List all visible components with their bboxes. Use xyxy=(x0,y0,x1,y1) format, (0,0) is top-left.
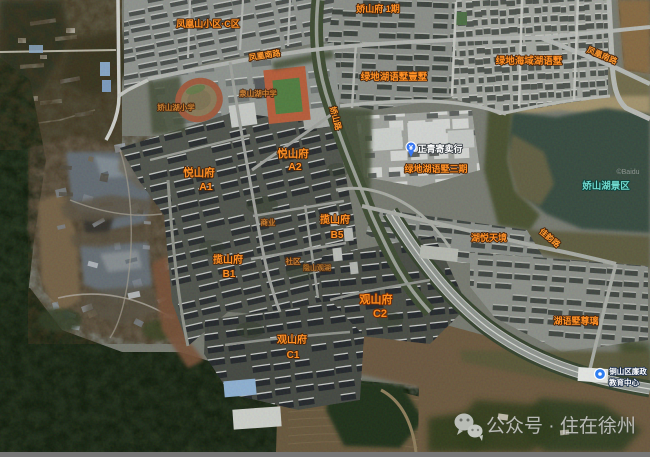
svg-text:观山府: 观山府 xyxy=(360,292,393,306)
svg-text:C1: C1 xyxy=(287,350,300,361)
svg-text:观山府: 观山府 xyxy=(277,333,307,346)
svg-text:A1: A1 xyxy=(199,181,213,193)
svg-text:悦山府: 悦山府 xyxy=(277,147,309,160)
svg-text:绿地湖语墅三期: 绿地湖语墅三期 xyxy=(404,163,467,174)
svg-text:湖悦天境: 湖悦天境 xyxy=(471,232,507,243)
svg-text:泉山湖中学: 泉山湖中学 xyxy=(239,88,277,98)
svg-text:湖语墅尊璃: 湖语墅尊璃 xyxy=(553,315,598,326)
svg-text:揽山府: 揽山府 xyxy=(320,213,350,226)
svg-text:绿地湖语墅壹墅: 绿地湖语墅壹墅 xyxy=(361,71,428,83)
svg-text:娇山湖小学: 娇山湖小学 xyxy=(156,102,195,112)
svg-text:揽山府: 揽山府 xyxy=(213,253,243,266)
svg-text:商业: 商业 xyxy=(261,217,276,227)
svg-text:©Baidu: ©Baidu xyxy=(616,168,639,176)
svg-text:悦山府: 悦山府 xyxy=(183,166,215,179)
svg-text:铜山区廉政: 铜山区廉政 xyxy=(609,366,647,376)
svg-text:隐山观湖: 隐山观湖 xyxy=(303,263,331,272)
svg-text:正青寄卖行: 正青寄卖行 xyxy=(417,143,462,154)
svg-text:绿地海域湖语墅: 绿地海域湖语墅 xyxy=(496,55,563,67)
svg-text:C2: C2 xyxy=(373,308,387,320)
svg-text:B5: B5 xyxy=(331,230,344,241)
svg-text:B1: B1 xyxy=(223,269,236,280)
svg-text:娇山府 1期: 娇山府 1期 xyxy=(356,3,400,14)
svg-text:娇山湖景区: 娇山湖景区 xyxy=(581,180,630,192)
svg-text:公众号 · 住在徐州: 公众号 · 住在徐州 xyxy=(486,415,636,437)
svg-text:教育中心: 教育中心 xyxy=(608,377,639,387)
svg-text:凤凰山小区·C区: 凤凰山小区·C区 xyxy=(176,18,240,29)
svg-text:A2: A2 xyxy=(288,161,302,173)
svg-text:社区: 社区 xyxy=(285,256,301,266)
